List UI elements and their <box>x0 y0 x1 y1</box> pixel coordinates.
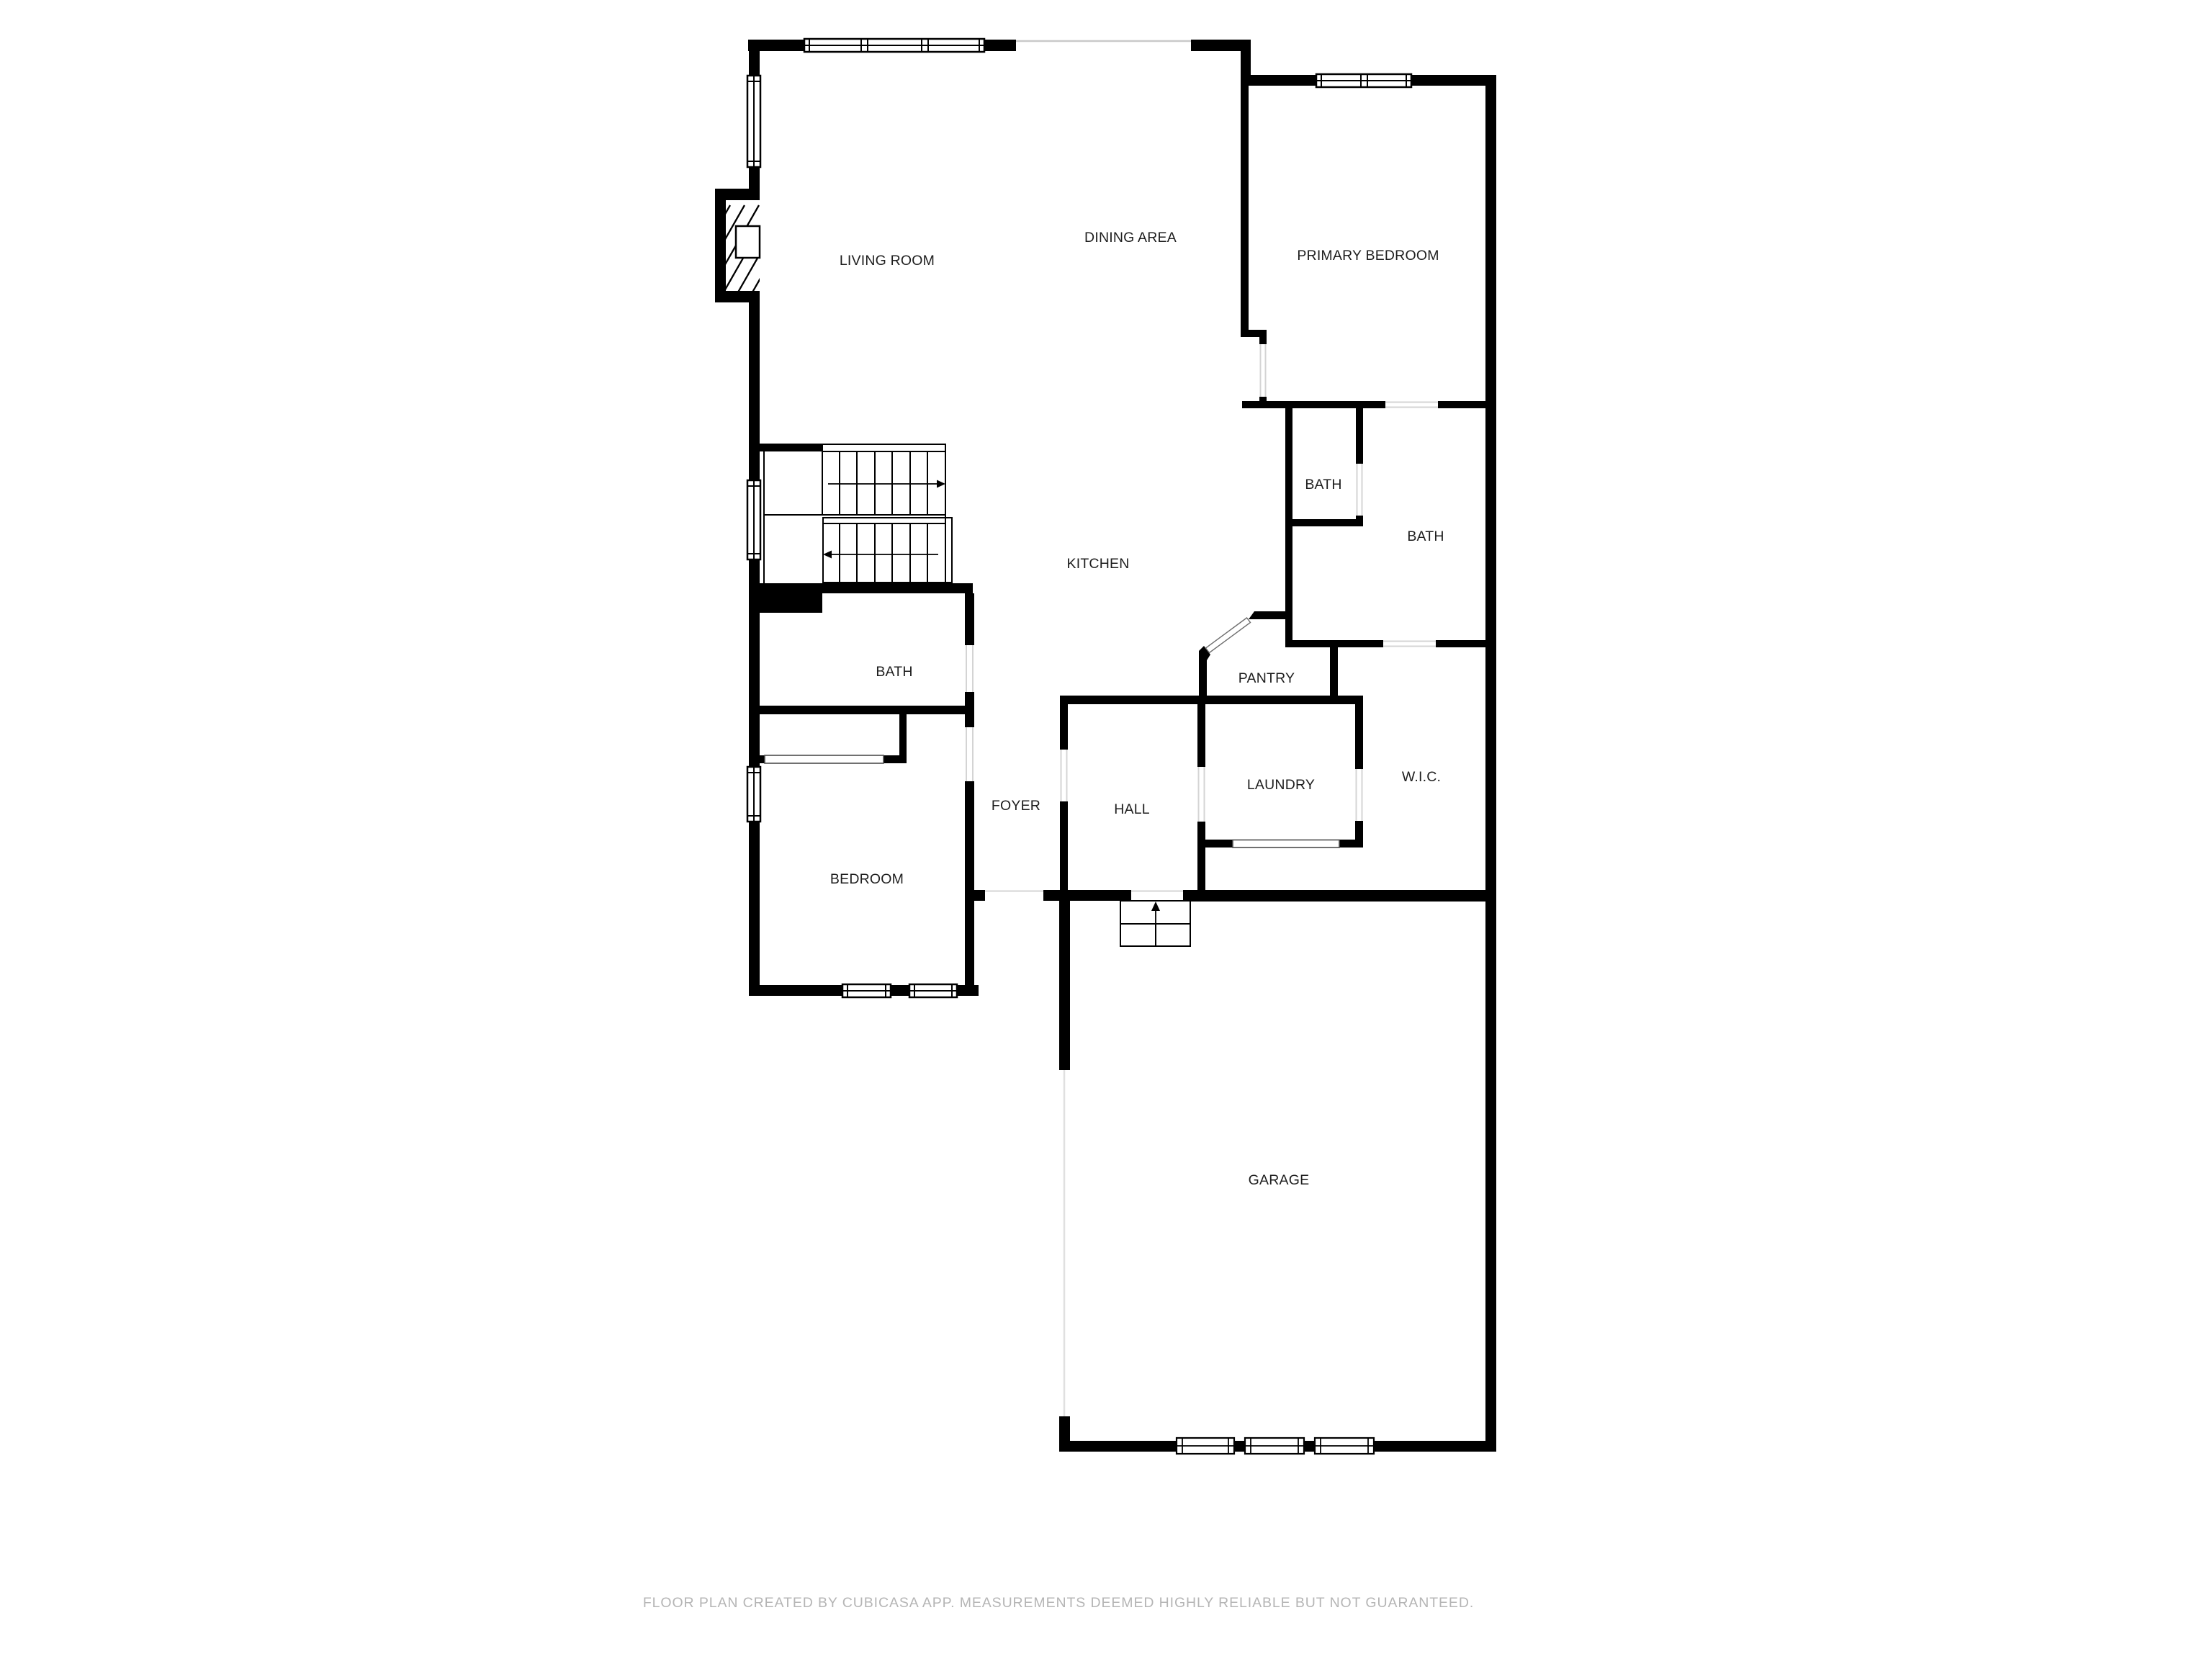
svg-text:BATH: BATH <box>1407 529 1444 544</box>
svg-text:FLOOR PLAN CREATED BY CUBICASA: FLOOR PLAN CREATED BY CUBICASA APP. MEAS… <box>643 1595 1474 1611</box>
svg-text:BATH: BATH <box>1305 477 1341 493</box>
svg-text:LIVING ROOM: LIVING ROOM <box>840 253 935 269</box>
svg-text:BEDROOM: BEDROOM <box>830 871 904 887</box>
svg-text:W.I.C.: W.I.C. <box>1402 769 1441 785</box>
svg-text:LAUNDRY: LAUNDRY <box>1247 777 1315 793</box>
svg-text:PANTRY: PANTRY <box>1238 670 1295 686</box>
svg-text:PRIMARY BEDROOM: PRIMARY BEDROOM <box>1297 248 1439 264</box>
svg-text:HALL: HALL <box>1114 801 1150 817</box>
svg-text:DINING AREA: DINING AREA <box>1084 230 1177 246</box>
svg-text:BATH: BATH <box>876 664 912 680</box>
svg-text:FOYER: FOYER <box>992 798 1040 814</box>
svg-text:KITCHEN: KITCHEN <box>1067 556 1130 572</box>
svg-text:GARAGE: GARAGE <box>1249 1172 1310 1188</box>
